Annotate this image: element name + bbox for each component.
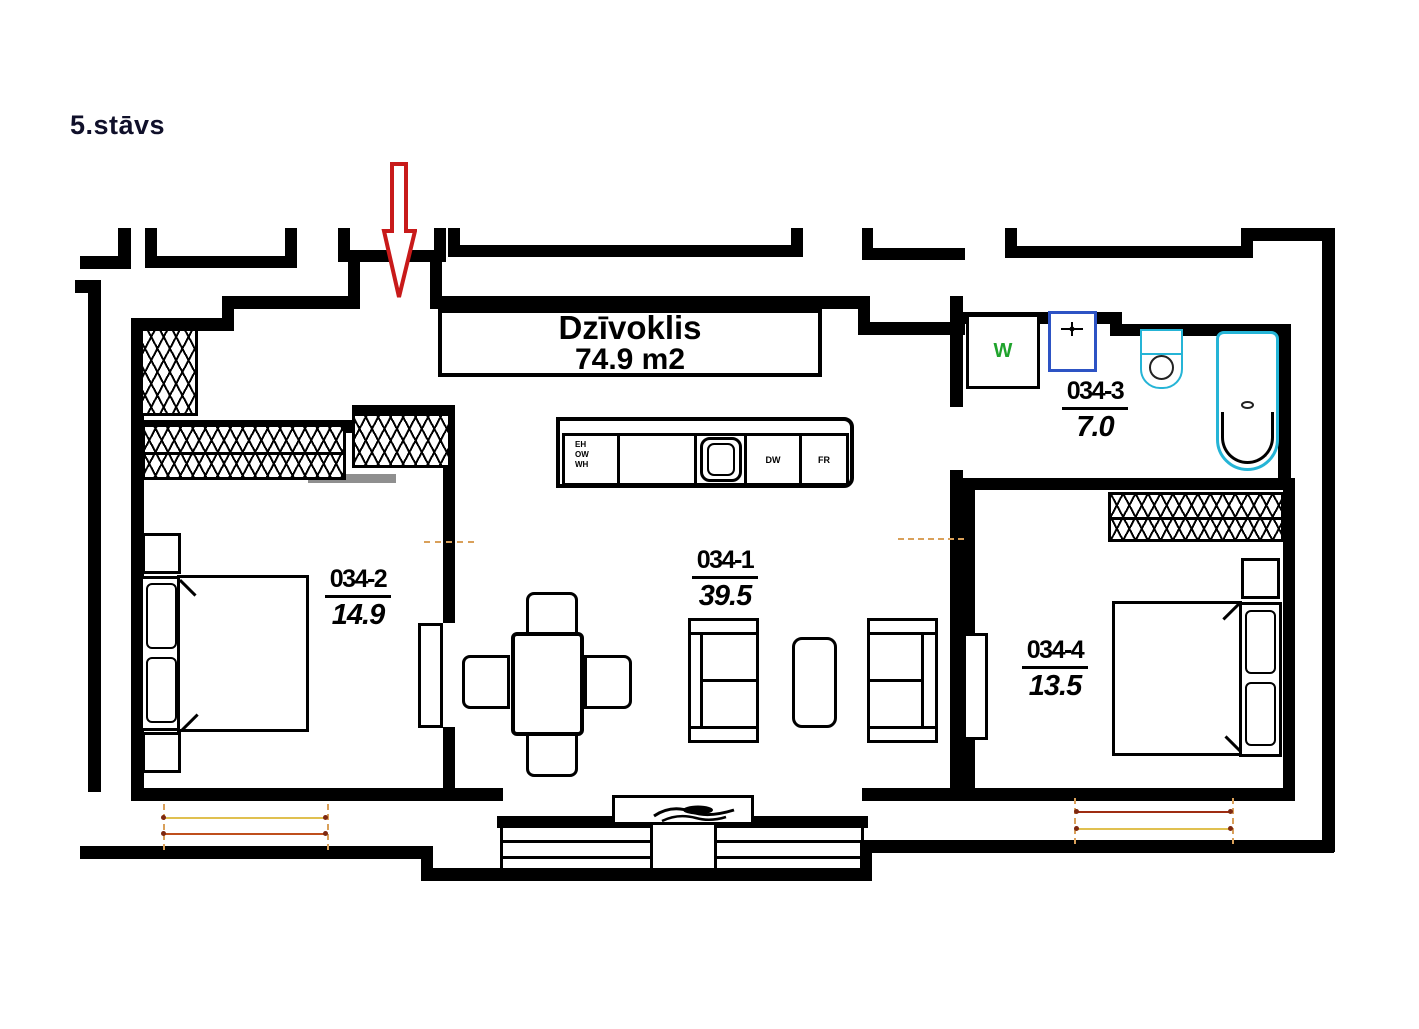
room-number: 034-3 (1062, 377, 1128, 410)
apartment-name: Dzīvoklis (558, 311, 701, 345)
pillow (146, 657, 177, 723)
closet (140, 328, 198, 416)
dimension-dot (161, 815, 166, 820)
toilet-tank (1140, 329, 1183, 355)
dimension-dot (323, 815, 328, 820)
dimension-dot (1074, 826, 1079, 831)
fridge-label: FR (818, 455, 830, 465)
dining-chair (584, 655, 632, 709)
washing-machine-label: W (994, 340, 1013, 363)
sofa-armrest (870, 726, 935, 729)
balcony-railing (503, 856, 650, 859)
bed-mattress (177, 575, 309, 732)
dimension-dot (323, 831, 328, 836)
room-number: 034-1 (692, 546, 758, 579)
door-leaf (963, 633, 988, 740)
nightstand (142, 533, 181, 574)
room-area: 39.5 (670, 580, 780, 613)
fridge: FR (799, 433, 849, 486)
door-leaf (418, 623, 443, 728)
dishwasher: DW (744, 433, 802, 486)
wall (858, 322, 965, 335)
dimension-dot (1228, 826, 1233, 831)
sink-basin (707, 443, 735, 476)
nightstand (1241, 558, 1280, 599)
room-area: 7.0 (1040, 411, 1150, 444)
wall (952, 788, 1295, 801)
wall (131, 788, 455, 801)
tap-icon (1061, 322, 1083, 336)
wardrobe (1108, 492, 1284, 542)
bathtub-inner-curve (1221, 412, 1274, 464)
bathtub-drain (1241, 401, 1254, 409)
wardrobe-shelf-line (145, 452, 343, 455)
wall (430, 296, 870, 309)
floor-plan: 5.stāvs (0, 0, 1419, 1029)
dining-table (511, 632, 584, 736)
room-number: 034-4 (1022, 636, 1088, 669)
wall (448, 245, 803, 257)
plant-icon (648, 800, 740, 826)
wall (862, 248, 965, 260)
wall (1278, 324, 1291, 490)
apartment-area: 74.9 m2 (575, 345, 685, 376)
bed-mattress (1112, 601, 1242, 756)
room-number: 034-2 (325, 565, 391, 598)
balcony-edge (500, 828, 503, 877)
wall (222, 296, 360, 309)
window-dimension-line (1078, 811, 1232, 813)
wall (1005, 246, 1253, 258)
washing-machine: W (966, 314, 1040, 389)
pillow (146, 583, 177, 649)
window-dimension-line (165, 833, 327, 835)
wardrobe (142, 424, 346, 480)
sofa-back (921, 632, 924, 729)
wall (962, 490, 975, 633)
wall (80, 256, 131, 269)
closet (352, 413, 451, 468)
wall (1283, 490, 1295, 800)
sofa-cushion-line (703, 679, 756, 682)
dimension-dot (1074, 809, 1079, 814)
nightstand (142, 732, 181, 773)
balcony-wall (421, 868, 872, 881)
dining-chair (526, 733, 578, 777)
apartment-title-box: Dzīvoklis 74.9 m2 (438, 309, 822, 377)
dimension-dot (1228, 809, 1233, 814)
wall (80, 846, 433, 859)
wall (1322, 228, 1335, 852)
entry-vestibule-wall (348, 262, 360, 309)
appliance-label: WH (575, 460, 617, 470)
room-area: 13.5 (1000, 670, 1110, 703)
sofa-cushion-line (870, 679, 921, 682)
toilet-seat (1149, 355, 1174, 380)
balcony-railing (717, 840, 861, 843)
dishwasher-label: DW (766, 455, 781, 465)
entrance-arrow-icon (381, 161, 417, 301)
room-label-living: 034-1 39.5 (670, 546, 780, 613)
floor-label: 5.stāvs (70, 110, 165, 141)
wall (145, 256, 297, 268)
balcony-railing (717, 856, 861, 859)
kitchen-appliance-block: EH OW WH (562, 433, 620, 486)
dimension-tick (163, 804, 165, 850)
appliance-label: OW (575, 450, 617, 460)
window-dimension-line (165, 817, 327, 819)
balcony-edge (861, 828, 864, 877)
wall (862, 788, 962, 801)
dining-chair (526, 592, 578, 636)
room-label-bedroom-left: 034-2 14.9 (302, 565, 414, 632)
window-dimension-line (1078, 828, 1232, 830)
wall (860, 840, 1334, 853)
dining-chair (462, 655, 510, 709)
coffee-table (792, 637, 837, 728)
kitchen-cabinet (617, 433, 697, 486)
room-label-bathroom: 034-3 7.0 (1040, 377, 1150, 444)
dimension-tick (1232, 798, 1234, 844)
dimension-tick (327, 804, 329, 850)
dimension-tick (1074, 798, 1076, 844)
room-label-bedroom-right: 034-4 13.5 (1000, 636, 1110, 703)
balcony-railing (503, 840, 650, 843)
wardrobe-shelf-line (1111, 517, 1281, 520)
pillow (1245, 610, 1276, 674)
pillow (1245, 682, 1276, 746)
room-area: 14.9 (302, 599, 414, 632)
appliance-label: EH (575, 440, 617, 450)
opening-dimension-dash (898, 538, 964, 540)
sofa-armrest (870, 632, 935, 635)
wall (952, 478, 1295, 490)
wall (88, 280, 101, 792)
dimension-dot (161, 831, 166, 836)
opening-dimension-dash (424, 541, 474, 543)
wall (443, 788, 503, 801)
bathroom-sink (1048, 311, 1097, 372)
